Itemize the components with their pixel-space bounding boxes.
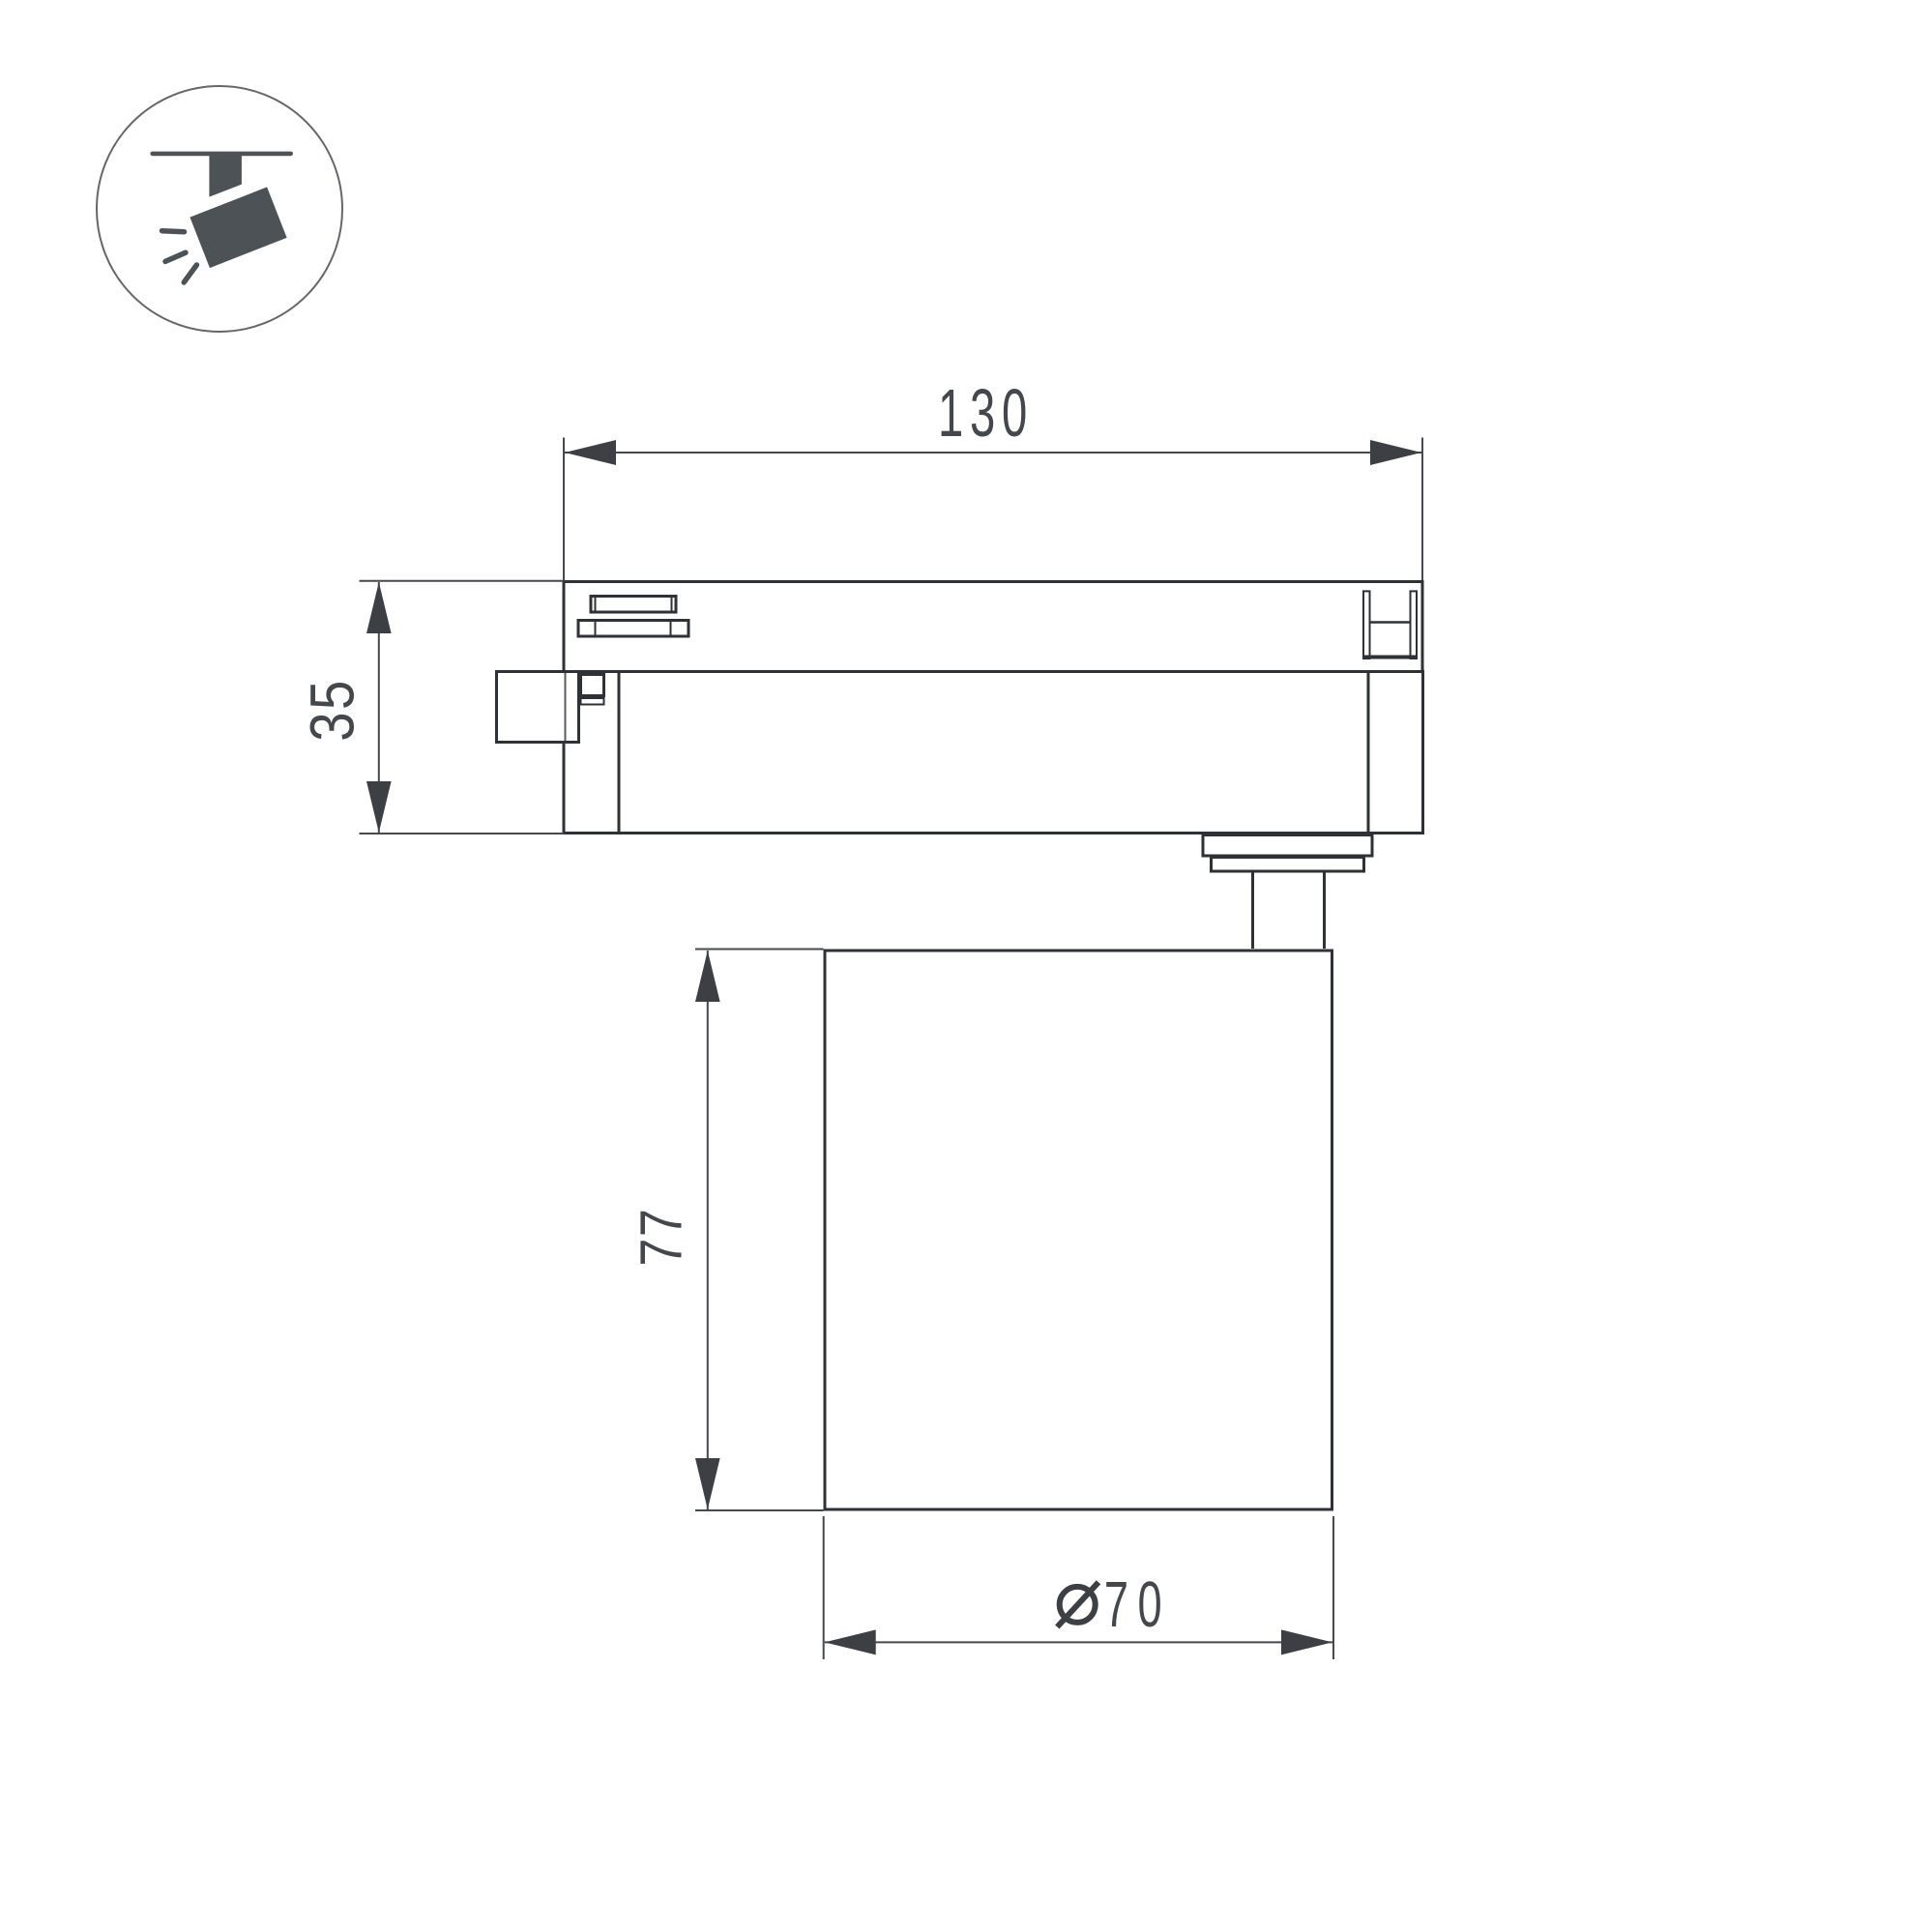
- svg-text:35: 35: [297, 678, 366, 742]
- svg-text:77: 77: [628, 1207, 693, 1266]
- svg-text:70: 70: [1104, 1568, 1171, 1641]
- svg-text:130: 130: [938, 375, 1034, 452]
